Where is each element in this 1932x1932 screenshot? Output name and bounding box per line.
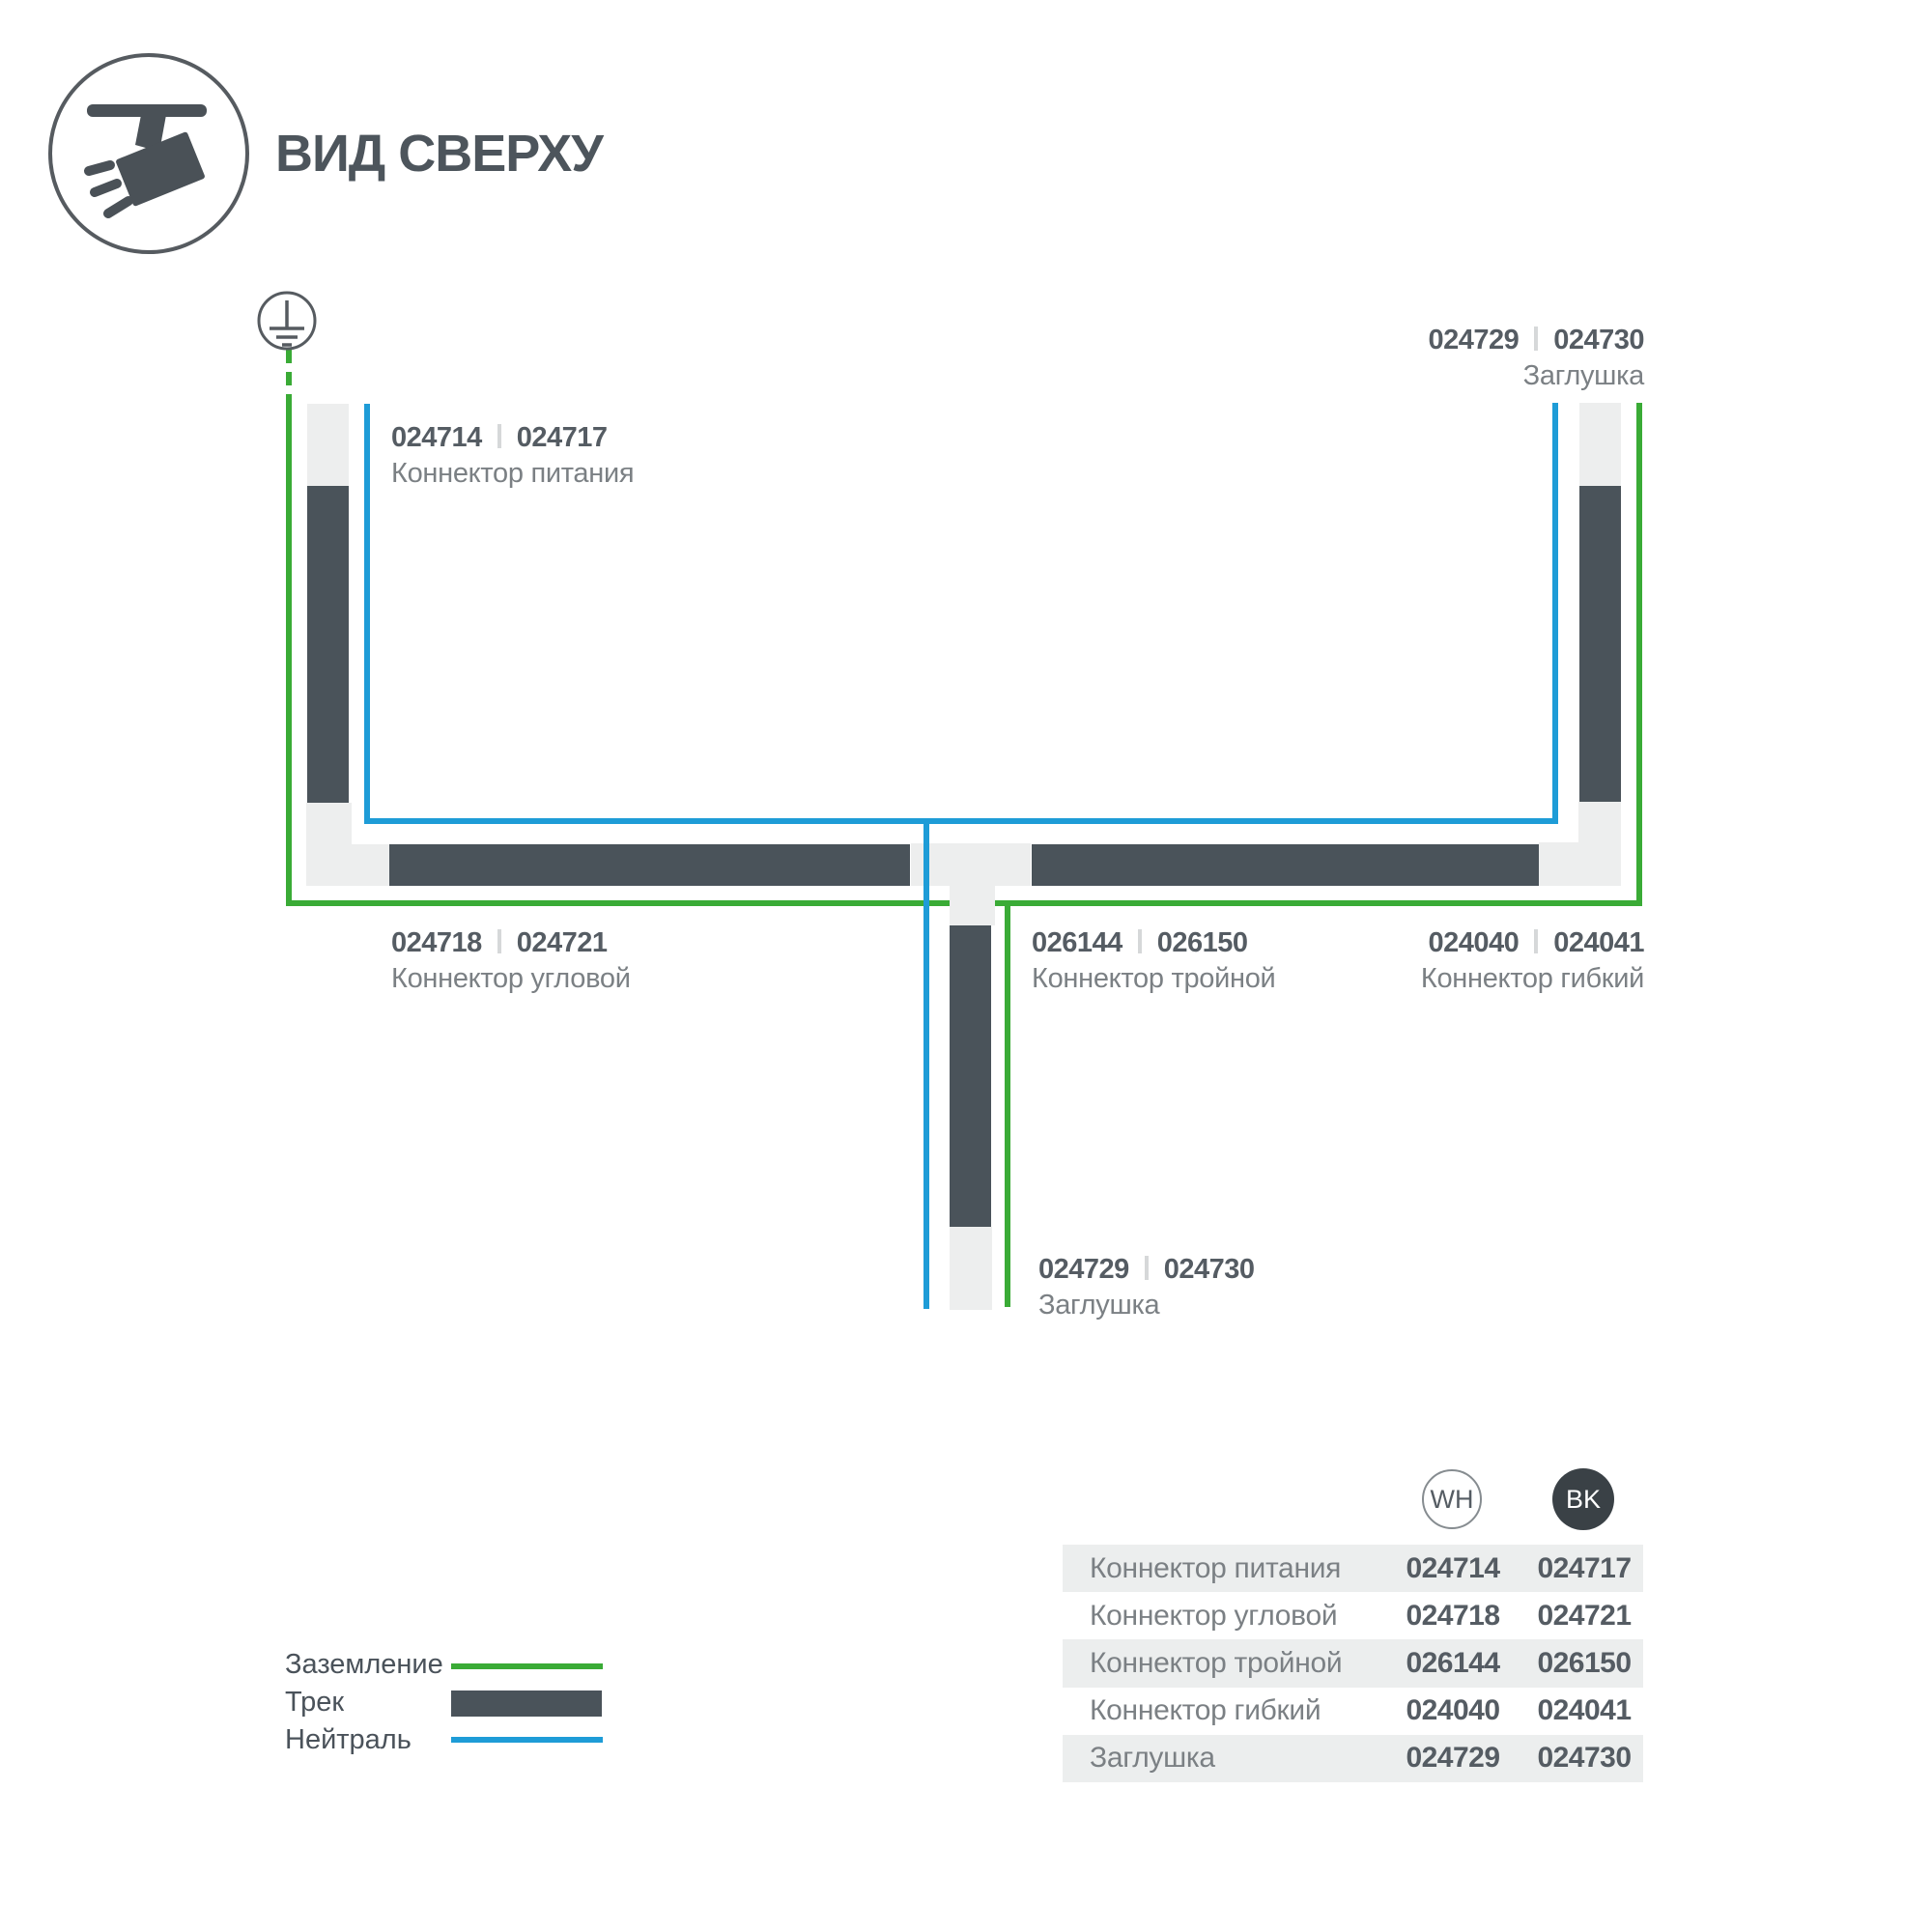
part-number-wh: 024714	[391, 422, 482, 453]
label-flexible-connector: 024040024041 Коннектор гибкий	[1421, 925, 1644, 997]
label-endcap-top: 024729024730 Заглушка	[1428, 323, 1644, 394]
row-part-name: Заглушка	[1090, 1742, 1395, 1775]
row-code-bk: 024721	[1526, 1600, 1642, 1633]
part-name: Заглушка	[1428, 358, 1644, 394]
part-number-bk: 024730	[1164, 1254, 1255, 1285]
track-bottom-left	[389, 844, 910, 886]
row-code-bk: 024041	[1526, 1694, 1642, 1727]
part-numbers: 024040024041	[1421, 925, 1644, 961]
part-numbers: 024729024730	[1038, 1252, 1255, 1288]
color-badge-wh: WH	[1422, 1469, 1482, 1529]
track-middle-vertical	[950, 925, 991, 1227]
part-numbers: 024714024717	[391, 420, 634, 456]
row-code-wh: 024040	[1395, 1694, 1511, 1727]
part-numbers: 026144026150	[1032, 925, 1275, 961]
label-power-connector: 024714024717 Коннектор питания	[391, 420, 634, 492]
ground-symbol-icon	[259, 293, 315, 349]
row-code-wh: 024729	[1395, 1742, 1511, 1775]
part-number-bk: 026150	[1157, 927, 1248, 958]
track-bottom-right	[1032, 844, 1539, 886]
track-right-vertical	[1579, 486, 1621, 802]
part-name: Коннектор угловой	[391, 961, 631, 997]
row-part-name: Коннектор угловой	[1090, 1600, 1395, 1633]
legend-label-neutral: Нейтраль	[285, 1724, 412, 1756]
endcap-bottom-piece	[950, 1227, 992, 1310]
table-row: Заглушка 024729 024730	[1063, 1735, 1643, 1782]
row-code-bk: 024717	[1526, 1552, 1642, 1585]
part-name: Коннектор гибкий	[1421, 961, 1644, 997]
table-row: Коннектор тройной 026144 026150	[1063, 1639, 1643, 1687]
power-connector-piece	[307, 404, 349, 486]
legend-label-track: Трек	[285, 1687, 344, 1719]
divider	[1145, 1256, 1149, 1280]
label-endcap-bottom: 024729024730 Заглушка	[1038, 1252, 1255, 1323]
part-name: Коннектор тройной	[1032, 961, 1275, 997]
endcap-top-piece	[1579, 403, 1621, 486]
part-number-wh: 024040	[1428, 927, 1519, 958]
legend-ground-line-swatch	[451, 1663, 603, 1669]
part-numbers: 024718024721	[391, 925, 631, 961]
divider	[1534, 929, 1538, 953]
divider	[1534, 327, 1538, 351]
legend-track-bar-swatch	[451, 1690, 602, 1717]
parts-table: Коннектор питания 024714 024717 Коннекто…	[1063, 1545, 1643, 1782]
part-number-bk: 024721	[517, 927, 608, 958]
row-part-name: Коннектор гибкий	[1090, 1694, 1395, 1727]
part-number-bk: 024730	[1553, 325, 1644, 355]
part-numbers: 024729024730	[1428, 323, 1644, 358]
table-row: Коннектор питания 024714 024717	[1063, 1545, 1643, 1592]
part-number-bk: 024717	[517, 422, 608, 453]
divider	[1138, 929, 1142, 953]
track-left-vertical	[307, 486, 349, 803]
corner-connector-piece	[306, 803, 389, 886]
table-row: Коннектор угловой 024718 024721	[1063, 1592, 1643, 1639]
part-number-wh: 024729	[1038, 1254, 1129, 1285]
part-number-wh: 026144	[1032, 927, 1122, 958]
row-code-wh: 026144	[1395, 1647, 1511, 1680]
legend-label-ground: Заземление	[285, 1649, 443, 1681]
part-name: Заглушка	[1038, 1288, 1255, 1323]
row-code-bk: 024730	[1526, 1742, 1642, 1775]
label-corner-connector: 024718024721 Коннектор угловой	[391, 925, 631, 997]
triple-connector-stem	[950, 886, 995, 925]
part-name: Коннектор питания	[391, 456, 634, 492]
part-number-wh: 024718	[391, 927, 482, 958]
row-part-name: Коннектор питания	[1090, 1552, 1395, 1585]
part-number-bk: 024041	[1553, 927, 1644, 958]
part-number-wh: 024729	[1428, 325, 1519, 355]
row-code-wh: 024714	[1395, 1552, 1511, 1585]
divider	[497, 929, 501, 953]
color-badge-bk: BK	[1552, 1468, 1614, 1530]
label-triple-connector: 026144026150 Коннектор тройной	[1032, 925, 1275, 997]
row-code-wh: 024718	[1395, 1600, 1511, 1633]
table-row: Коннектор гибкий 024040 024041	[1063, 1688, 1643, 1735]
legend-neutral-line-swatch	[451, 1737, 603, 1743]
row-part-name: Коннектор тройной	[1090, 1647, 1395, 1680]
row-code-bk: 026150	[1526, 1647, 1642, 1680]
divider	[497, 424, 501, 448]
flexible-connector-piece	[1539, 802, 1621, 886]
page: ВИД СВЕРХУ	[0, 0, 1932, 1932]
